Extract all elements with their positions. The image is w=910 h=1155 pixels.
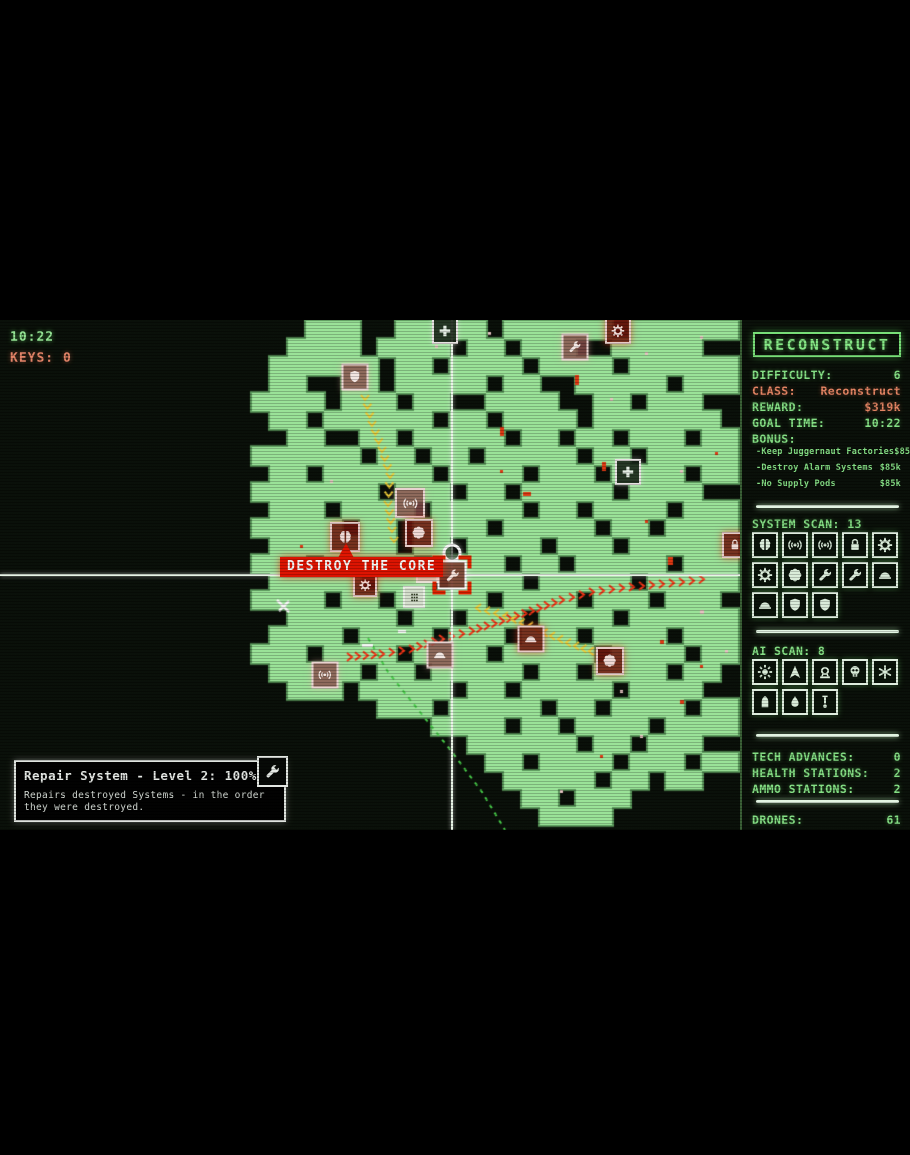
bonus-item-label: -No Supply Pods xyxy=(756,479,836,489)
wrench-icon xyxy=(567,339,584,356)
stat-row-label: DIFFICULTY: xyxy=(752,368,833,382)
pendulum-icon-box[interactable] xyxy=(812,689,838,715)
flower-icon-box[interactable] xyxy=(782,562,808,588)
drones-value: 61 xyxy=(886,813,901,827)
turret-icon-box[interactable] xyxy=(812,659,838,685)
signal-icon xyxy=(786,536,804,554)
lock-map-icon[interactable] xyxy=(722,532,740,558)
wrench-icon xyxy=(257,756,288,787)
brain-icon xyxy=(756,536,774,554)
plus-icon xyxy=(437,323,453,339)
signal-icon xyxy=(816,536,834,554)
helmet-icon-box[interactable] xyxy=(752,592,778,618)
signal-map-icon[interactable] xyxy=(312,662,339,689)
skull-icon xyxy=(846,663,864,681)
system-scan-grid xyxy=(752,532,906,618)
pendulum-icon xyxy=(816,693,834,711)
system-scan-header: SYSTEM SCAN: 13 xyxy=(752,517,862,531)
bonus-item-value: $85k xyxy=(880,463,901,473)
helmet-icon xyxy=(523,631,540,648)
stat-row: CLASS:Reconstruct xyxy=(752,384,901,398)
station-row-value: 2 xyxy=(894,782,901,796)
asterisk-icon xyxy=(876,663,894,681)
station-row-value: 0 xyxy=(894,750,901,764)
station-row: AMMO STATIONS:2 xyxy=(752,782,901,796)
stat-row-value: Reconstruct xyxy=(820,384,901,398)
shield-icon xyxy=(816,596,834,614)
helmet-map-icon[interactable] xyxy=(518,626,545,653)
drop-icon xyxy=(786,693,804,711)
wrench-icon-box[interactable] xyxy=(842,562,868,588)
bonus-item-value: $85k xyxy=(894,447,910,457)
divider xyxy=(756,734,899,737)
game-screen: DESTROY THE CORE 10:22 KEYS: 0 Repair Sy… xyxy=(0,320,910,830)
arrow-icon xyxy=(786,663,804,681)
bonus-item: -Keep Juggernaut Factories$85k xyxy=(756,447,901,457)
sun-icon-box[interactable] xyxy=(752,659,778,685)
helmet-icon-box[interactable] xyxy=(872,562,898,588)
ai-scan-header: AI SCAN: 8 xyxy=(752,644,825,658)
gear-icon xyxy=(358,578,372,592)
bonus-item-value: $85k xyxy=(880,479,901,489)
helmet-icon xyxy=(756,596,774,614)
shield-map-icon[interactable] xyxy=(342,364,369,391)
station-row-label: TECH ADVANCES: xyxy=(752,750,855,764)
gear-icon xyxy=(876,536,894,554)
stat-row: DIFFICULTY:6 xyxy=(752,368,901,382)
plus-map-icon[interactable] xyxy=(432,320,458,344)
gear-icon-box[interactable] xyxy=(872,532,898,558)
shield-icon xyxy=(347,369,364,386)
station-row-label: HEALTH STATIONS: xyxy=(752,766,869,780)
helmet-map-icon[interactable] xyxy=(427,642,454,669)
stat-row-label: GOAL TIME: xyxy=(752,416,825,430)
pod-icon xyxy=(756,693,774,711)
divider xyxy=(756,800,899,803)
bonus-item-label: -Keep Juggernaut Factories xyxy=(756,447,894,457)
bonus-item: -No Supply Pods$85k xyxy=(756,479,901,489)
bonus-item: -Destroy Alarm Systems$85k xyxy=(756,463,901,473)
wrench-icon xyxy=(816,566,834,584)
helmet-icon xyxy=(432,647,449,664)
signal-icon-box[interactable] xyxy=(812,532,838,558)
system-tooltip: Repair System - Level 2: 100% (1/2) Repa… xyxy=(14,760,286,822)
grid-icon xyxy=(408,591,421,604)
lock-icon-box[interactable] xyxy=(842,532,868,558)
stat-row-value: 10:22 xyxy=(864,416,901,430)
lock-icon xyxy=(846,536,864,554)
tactical-map: DESTROY THE CORE xyxy=(0,320,740,830)
mission-timer: 10:22 xyxy=(10,330,72,345)
shield-icon xyxy=(786,596,804,614)
bonus-item-label: -Destroy Alarm Systems xyxy=(756,463,873,473)
gear-icon xyxy=(756,566,774,584)
plus-icon xyxy=(620,464,636,480)
shield-icon-box[interactable] xyxy=(812,592,838,618)
signal-icon-box[interactable] xyxy=(782,532,808,558)
turret-icon xyxy=(816,663,834,681)
signal-icon xyxy=(401,494,420,513)
flower-map-icon[interactable] xyxy=(405,519,433,547)
divider xyxy=(756,505,899,508)
keys-counter: KEYS: 0 xyxy=(10,351,72,366)
station-row-label: AMMO STATIONS: xyxy=(752,782,855,796)
drop-icon-box[interactable] xyxy=(782,689,808,715)
sun-icon xyxy=(756,663,774,681)
pod-icon-box[interactable] xyxy=(752,689,778,715)
selection-corner xyxy=(459,556,472,569)
bonus-label: BONUS: xyxy=(752,432,796,446)
plus-map-icon[interactable] xyxy=(615,459,641,485)
stat-row-value: $319k xyxy=(864,400,901,414)
hud-top-left: 10:22 KEYS: 0 xyxy=(10,330,72,366)
flower-icon xyxy=(786,566,804,584)
brain-icon-box[interactable] xyxy=(752,532,778,558)
stat-row-label: REWARD: xyxy=(752,400,803,414)
wrench-icon xyxy=(846,566,864,584)
flower-map-icon[interactable] xyxy=(596,647,624,675)
stat-row-value: 6 xyxy=(894,368,901,382)
station-row: TECH ADVANCES:0 xyxy=(752,750,901,764)
tooltip-title: Repair System - Level 2: 100% (1/2) xyxy=(24,768,276,783)
grid-map-icon[interactable] xyxy=(403,586,425,608)
selection-corner xyxy=(433,582,446,595)
objective-pointer-arrow xyxy=(338,543,354,558)
flower-icon xyxy=(410,524,427,541)
skull-icon-box[interactable] xyxy=(842,659,868,685)
wrench-icon-box[interactable] xyxy=(812,562,838,588)
mission-sidebar: RECONSTRUCT DIFFICULTY:6CLASS:Reconstruc… xyxy=(740,320,910,830)
divider xyxy=(756,630,899,633)
stat-row: GOAL TIME:10:22 xyxy=(752,416,901,430)
gear-map-icon[interactable] xyxy=(605,320,631,344)
signal-icon xyxy=(317,667,334,684)
lock-icon xyxy=(727,537,740,553)
arrow-icon-box[interactable] xyxy=(782,659,808,685)
station-row-value: 2 xyxy=(894,766,901,780)
stat-row-label: CLASS: xyxy=(752,384,796,398)
bonus-header: BONUS: xyxy=(752,432,901,446)
wrench-map-icon[interactable] xyxy=(562,334,589,361)
flower-icon xyxy=(601,652,618,669)
ai-scan-grid xyxy=(752,659,906,715)
signal-map-icon[interactable] xyxy=(395,488,425,518)
drones-label: DRONES: xyxy=(752,813,803,827)
drones-row: DRONES: 61 xyxy=(752,813,901,827)
mission-title: RECONSTRUCT xyxy=(753,332,901,357)
asterisk-icon-box[interactable] xyxy=(872,659,898,685)
gear-icon-box[interactable] xyxy=(752,562,778,588)
tooltip-body: Repairs destroyed Systems - in the order… xyxy=(24,790,276,813)
screenshot-stage: DESTROY THE CORE 10:22 KEYS: 0 Repair Sy… xyxy=(0,0,910,1155)
stat-row: REWARD:$319k xyxy=(752,400,901,414)
station-row: HEALTH STATIONS:2 xyxy=(752,766,901,780)
helmet-icon xyxy=(876,566,894,584)
shield-icon-box[interactable] xyxy=(782,592,808,618)
objective-banner: DESTROY THE CORE xyxy=(280,557,443,577)
gear-icon xyxy=(610,323,626,339)
selection-corner xyxy=(459,582,472,595)
